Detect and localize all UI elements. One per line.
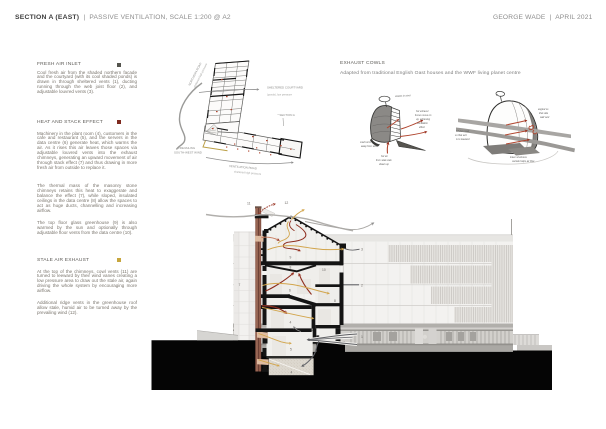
svg-text:ventilation: ventilation	[417, 122, 428, 125]
svg-text:6: 6	[289, 288, 291, 292]
svg-text:sheltered high pressure: sheltered high pressure	[234, 170, 262, 176]
svg-text:10: 10	[322, 268, 326, 272]
svg-text:fumes move on: fumes move on	[415, 114, 432, 117]
svg-text:Chutes road: Chutes road	[456, 130, 470, 133]
svg-text:8: 8	[290, 266, 292, 270]
svg-text:hot air: hot air	[381, 155, 388, 158]
svg-text:8: 8	[334, 299, 336, 303]
svg-text:1: 1	[361, 335, 363, 339]
svg-text:away from wind: away from wind	[361, 145, 378, 148]
svg-text:rotates in wind: rotates in wind	[395, 94, 411, 98]
svg-text:7: 7	[239, 283, 241, 287]
svg-text:12: 12	[285, 201, 289, 205]
svg-text:SHELTERED COURTYARD: SHELTERED COURTYARD	[267, 86, 303, 90]
svg-text:effect: effect	[419, 126, 425, 129]
svg-text:(ponds), low pressure: (ponds), low pressure	[267, 93, 292, 97]
svg-text:that side: that side	[539, 112, 549, 115]
svg-text:4: 4	[290, 321, 292, 325]
svg-text:wall vent: wall vent	[540, 116, 550, 119]
svg-text:angled so: angled so	[538, 108, 549, 111]
svg-text:from stale side: from stale side	[376, 159, 392, 162]
svg-text:9: 9	[290, 256, 292, 260]
svg-text:SOUTH-WEST WIND: SOUTH-WEST WIND	[174, 151, 202, 155]
svg-text:11: 11	[247, 202, 251, 206]
svg-text:* SECTION A: * SECTION A	[278, 113, 295, 117]
svg-text:up, achieving: up, achieving	[416, 118, 431, 121]
svg-text:outside helps air flow: outside helps air flow	[512, 160, 535, 163]
svg-text:VENTILATION ROAD: VENTILATION ROAD	[229, 164, 257, 170]
svg-text:so that exit: so that exit	[455, 134, 467, 137]
svg-text:drawn up: drawn up	[379, 163, 390, 166]
svg-text:3: 3	[361, 248, 363, 252]
svg-text:hot exhaust: hot exhaust	[416, 110, 429, 113]
svg-text:2: 2	[361, 283, 363, 287]
svg-text:lower structures: lower structures	[510, 156, 528, 159]
svg-text:cowl turns: cowl turns	[360, 141, 372, 144]
svg-text:4: 4	[291, 370, 293, 374]
svg-text:5: 5	[290, 347, 292, 351]
svg-text:is to leeward: is to leeward	[456, 138, 470, 141]
svg-text:PREVAILING: PREVAILING	[178, 146, 196, 150]
